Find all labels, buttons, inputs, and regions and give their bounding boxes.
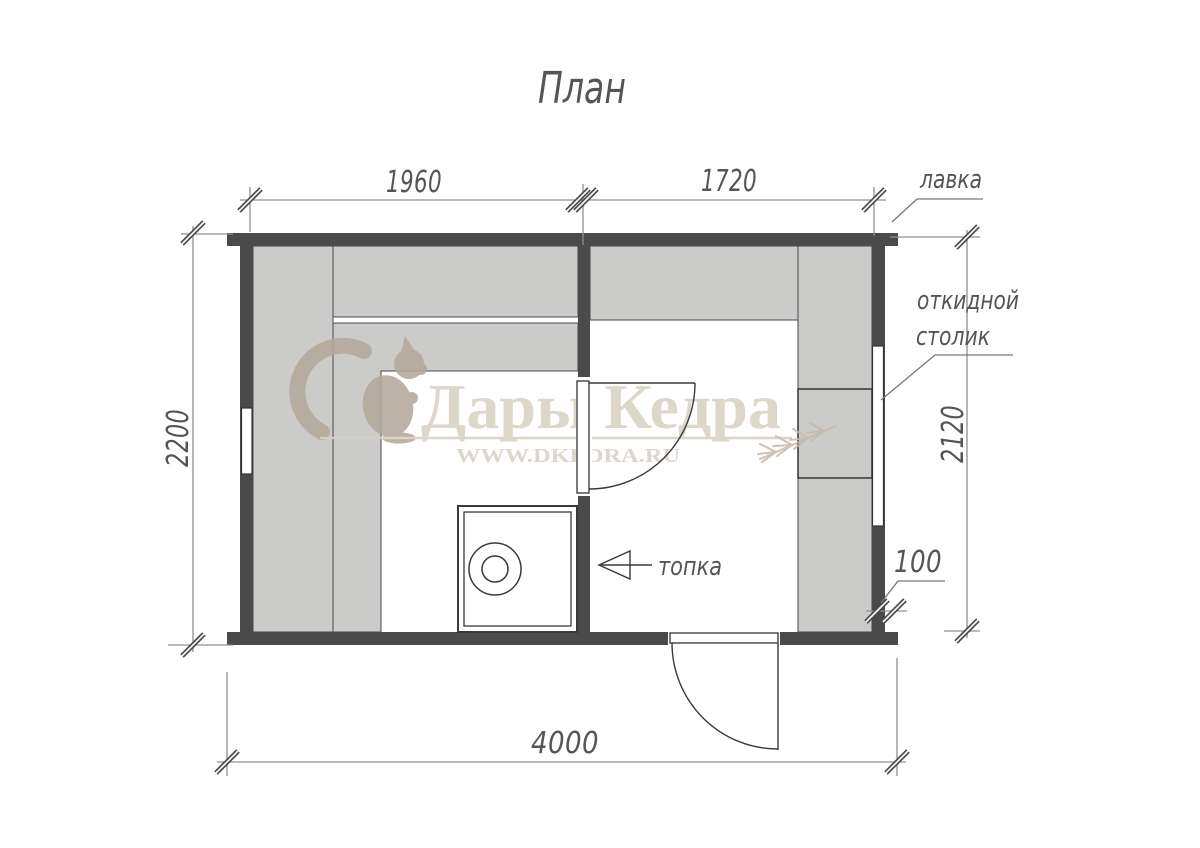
floor-plan-page: Дары Кедра WWW.DKEDRA.RU	[0, 0, 1200, 848]
dim-4000: 4000	[531, 726, 599, 761]
page-title: План	[538, 63, 626, 114]
stove	[458, 506, 577, 632]
firebox-label: топка	[658, 552, 722, 582]
folding-table-label-line2: столик	[916, 322, 990, 352]
dim-2120: 2120	[936, 405, 971, 463]
dimension-top-1960-1720: 1960 1720	[239, 164, 886, 245]
entry-door-swing-arc	[672, 643, 778, 749]
dimension-left-2200: 2200	[161, 222, 233, 656]
entry-door-leaf	[670, 633, 778, 643]
window-right-folding-table	[873, 346, 884, 526]
dim-100: 100	[894, 545, 942, 580]
entry-door	[670, 633, 778, 750]
stove-outer-box	[458, 506, 577, 632]
floor-plan-drawing: Дары Кедра WWW.DKEDRA.RU	[0, 0, 1200, 848]
window-left	[242, 408, 253, 474]
bench-steamroom-top	[333, 246, 578, 317]
folding-table-label-line1: откидной	[917, 286, 1019, 316]
bench-washroom-top	[590, 246, 798, 320]
label-folding-table: откидной столик	[881, 286, 1019, 400]
label-firebox: топка	[599, 551, 722, 582]
label-bench: лавка	[892, 165, 983, 222]
interior-door-leaf	[577, 381, 589, 493]
dim-1960: 1960	[386, 165, 442, 200]
wall-top	[227, 233, 898, 246]
wall-bottom	[227, 632, 898, 645]
bench-label: лавка	[919, 165, 982, 195]
dim-2200: 2200	[161, 409, 196, 467]
dim-1720: 1720	[701, 164, 757, 199]
watermark-site-text: WWW.DKEDRA.RU	[456, 445, 680, 467]
dimension-bottom-4000: 4000	[216, 658, 908, 776]
